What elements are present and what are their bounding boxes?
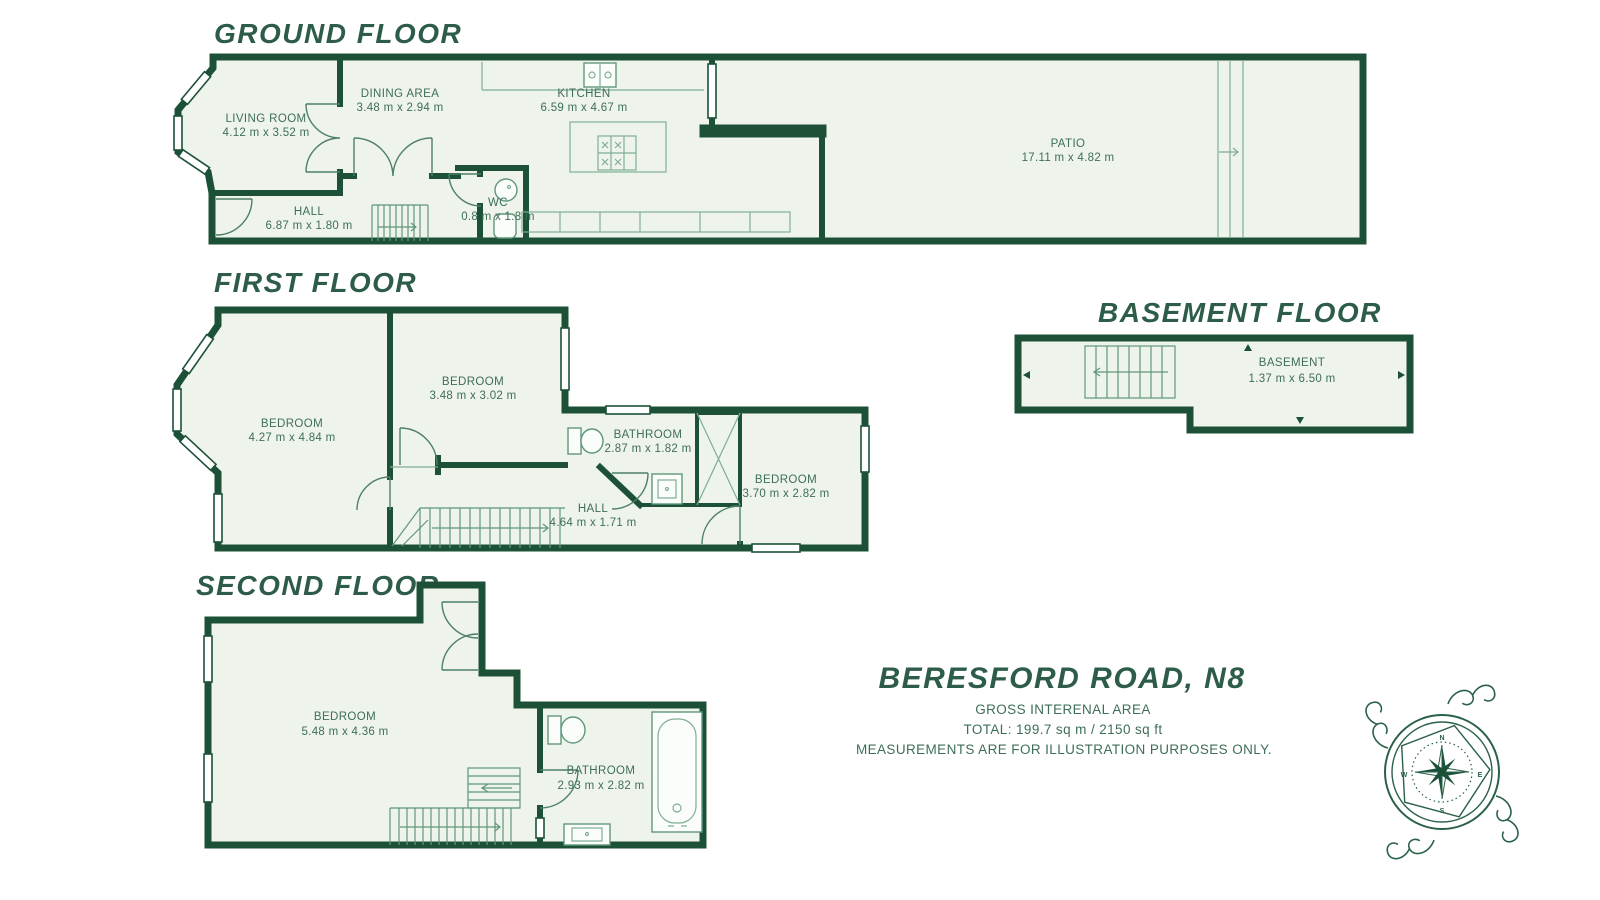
basin bbox=[564, 824, 610, 845]
summary-block: BERESFORD ROAD, N8 GROSS INTERENAL AREA … bbox=[856, 662, 1272, 757]
room-label: BASEMENT bbox=[1259, 357, 1325, 369]
room-label: HALL bbox=[294, 206, 325, 218]
window bbox=[752, 544, 800, 552]
room-label: KITCHEN bbox=[557, 88, 610, 100]
window bbox=[204, 754, 212, 802]
ground-floor-outline bbox=[178, 57, 1363, 241]
room-label: BEDROOM bbox=[314, 711, 376, 723]
window bbox=[214, 494, 222, 542]
window bbox=[861, 426, 869, 472]
toilet-bowl bbox=[581, 429, 603, 453]
second-floor-plan: SECOND FLOOR bbox=[196, 570, 703, 845]
window bbox=[536, 818, 544, 838]
basement-floor-plan: BASEMENT FLOOR BASEMENT 1.37 m x 6.50 m bbox=[1018, 297, 1410, 430]
second-floor-title: SECOND FLOOR bbox=[196, 570, 440, 601]
bay-window bbox=[174, 116, 182, 150]
toilet-cistern bbox=[548, 716, 561, 744]
room-dims: 4.12 m x 3.52 m bbox=[223, 127, 310, 139]
compass-flourish bbox=[1489, 793, 1521, 844]
room-dims: 0.8 m x 1.8 m bbox=[461, 211, 535, 223]
room-label: LIVING ROOM bbox=[225, 113, 306, 125]
basement-floor-title: BASEMENT FLOOR bbox=[1098, 297, 1382, 328]
room-dims: 3.48 m x 2.94 m bbox=[357, 102, 444, 114]
window bbox=[606, 406, 650, 414]
gross-area-label: GROSS INTERENAL AREA bbox=[975, 702, 1151, 717]
second-floor-outline bbox=[208, 585, 703, 845]
compass-flourish bbox=[1363, 700, 1395, 751]
basin bbox=[652, 474, 682, 504]
room-dims: 17.11 m x 4.82 m bbox=[1022, 152, 1115, 164]
first-floor-plan: FIRST FLOOR bbox=[173, 267, 869, 552]
toilet-cistern bbox=[568, 428, 581, 454]
compass-flourish bbox=[1446, 683, 1497, 712]
window bbox=[204, 636, 212, 682]
compass-east-label: E bbox=[1478, 772, 1483, 779]
room-label: PATIO bbox=[1051, 138, 1086, 150]
total-area: TOTAL: 199.7 sq m / 2150 sq ft bbox=[963, 722, 1162, 737]
room-label: WC bbox=[488, 197, 508, 209]
compass-south-label: S bbox=[1440, 808, 1445, 815]
room-label: BATHROOM bbox=[614, 429, 683, 441]
compass-star bbox=[1415, 745, 1469, 799]
flourish-curl bbox=[1363, 700, 1395, 751]
room-label: BEDROOM bbox=[261, 418, 323, 430]
window bbox=[561, 328, 569, 390]
room-dims: 1.37 m x 6.50 m bbox=[1249, 373, 1336, 385]
room-label: DINING AREA bbox=[361, 88, 440, 100]
room-dims: 4.64 m x 1.71 m bbox=[550, 517, 637, 529]
room-label: BEDROOM bbox=[442, 376, 504, 388]
property-address: BERESFORD ROAD, N8 bbox=[878, 662, 1245, 695]
toilet-bowl bbox=[561, 717, 585, 743]
room-dims: 6.87 m x 1.80 m bbox=[266, 220, 353, 232]
flourish-curl bbox=[1386, 833, 1437, 862]
kitchen-window bbox=[708, 64, 716, 118]
first-floor-title: FIRST FLOOR bbox=[214, 267, 417, 298]
compass-rose: N E S W bbox=[1363, 683, 1521, 862]
compass-north-label: N bbox=[1439, 735, 1444, 742]
flourish-curl bbox=[1446, 683, 1497, 712]
room-dims: 5.48 m x 4.36 m bbox=[302, 726, 389, 738]
bay-window bbox=[173, 389, 181, 431]
room-label: HALL bbox=[578, 503, 609, 515]
room-dims: 3.48 m x 3.02 m bbox=[430, 390, 517, 402]
room-label: BEDROOM bbox=[755, 474, 817, 486]
room-dims: 3.70 m x 2.82 m bbox=[743, 488, 830, 500]
compass-west-label: W bbox=[1401, 772, 1408, 779]
room-label: BATHROOM bbox=[567, 765, 636, 777]
room-dims: 4.27 m x 4.84 m bbox=[249, 432, 336, 444]
flourish-curl bbox=[1489, 793, 1521, 844]
basement-outline bbox=[1018, 338, 1410, 430]
ground-floor-title: GROUND FLOOR bbox=[214, 18, 462, 49]
disclaimer: MEASUREMENTS ARE FOR ILLUSTRATION PURPOS… bbox=[856, 742, 1272, 757]
room-dims: 2.87 m x 1.82 m bbox=[605, 443, 692, 455]
room-dims: 2.93 m x 2.82 m bbox=[558, 780, 645, 792]
ground-floor-plan: GROUND FLOOR bbox=[174, 18, 1363, 241]
compass-flourish bbox=[1386, 833, 1437, 862]
floorplan-canvas: GROUND FLOOR bbox=[0, 0, 1600, 900]
room-dims: 6.59 m x 4.67 m bbox=[541, 102, 628, 114]
